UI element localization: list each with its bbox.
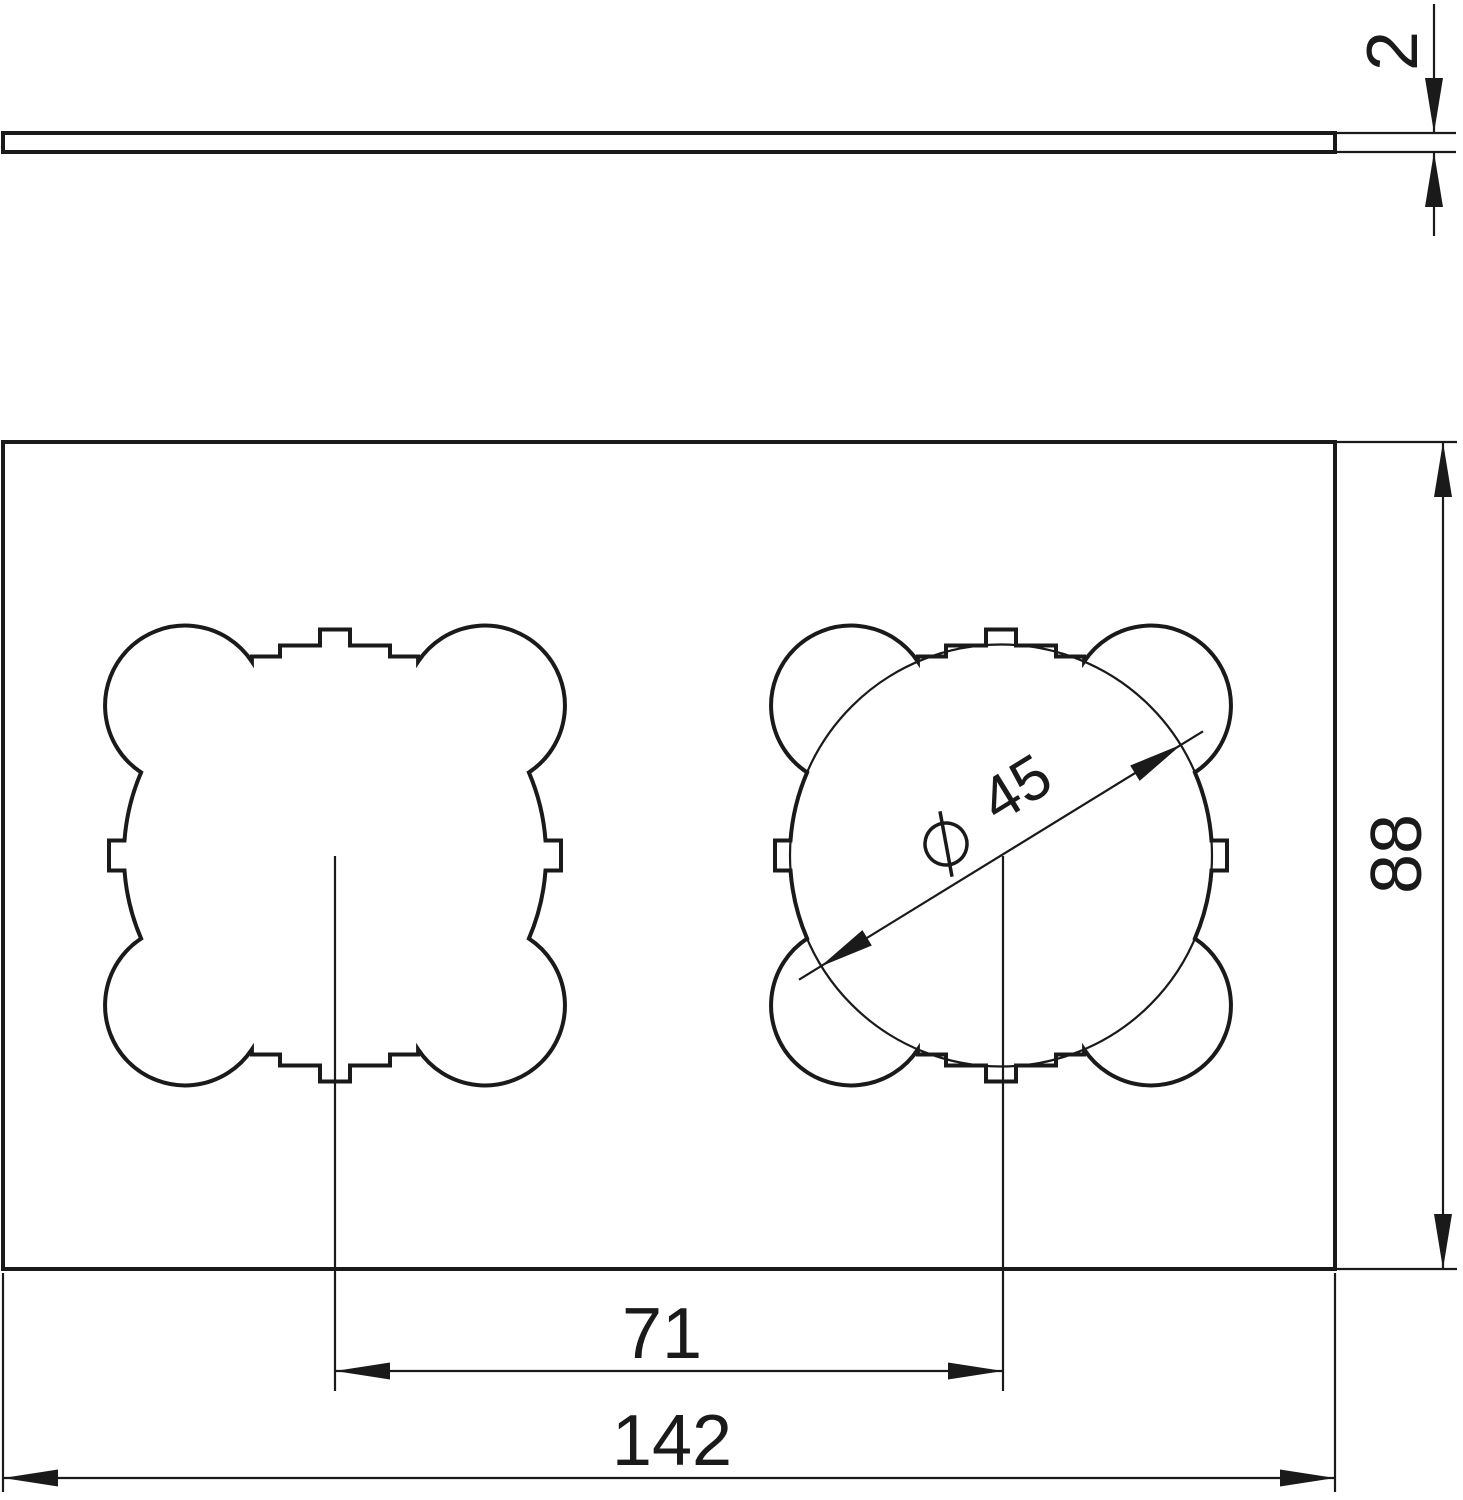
- plate-outline: [3, 442, 1335, 1269]
- width-arrow-left-icon: [3, 1470, 58, 1487]
- thickness-label: 2: [1353, 31, 1433, 71]
- diameter-arrow-lower-icon: [820, 930, 872, 967]
- diameter-symbol-icon: [912, 807, 980, 882]
- thickness-arrow-top-icon: [1425, 78, 1443, 133]
- thickness-label-group: 2: [1353, 31, 1433, 71]
- width-label: 142: [612, 1401, 732, 1481]
- width-arrow-right-icon: [1280, 1470, 1335, 1487]
- thickness-arrow-bottom-icon: [1425, 152, 1443, 207]
- height-arrow-top-icon: [1434, 442, 1452, 497]
- spacing-arrow-left-icon: [335, 1363, 390, 1380]
- technical-drawing-page: 2 45 88 71 142: [0, 0, 1463, 1500]
- diameter-label: 45: [969, 741, 1064, 836]
- diameter-label-group: 45: [969, 741, 1064, 836]
- side-view-plate-outline: [3, 133, 1335, 152]
- height-arrow-bottom-icon: [1434, 1214, 1452, 1269]
- spacing-arrow-right-icon: [948, 1363, 1003, 1380]
- height-label-group: 88: [1357, 814, 1437, 894]
- diameter-arrow-upper-icon: [1130, 744, 1182, 781]
- dimension-drawing-canvas: 2 45 88 71 142: [0, 0, 1463, 1500]
- spacing-label: 71: [622, 1294, 702, 1374]
- height-label: 88: [1357, 814, 1437, 894]
